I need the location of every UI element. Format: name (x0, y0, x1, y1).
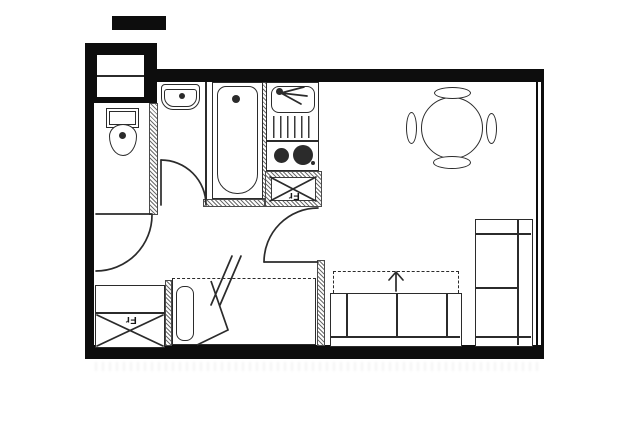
kitchen-fridge-cross (270, 177, 316, 201)
shower-door-swing-arc (161, 160, 206, 205)
floor-plan: Fr Fr (0, 0, 640, 427)
blanket-fold (197, 281, 228, 345)
entry-fridge-cross (97, 315, 163, 346)
living-door-swing-arc (264, 208, 318, 262)
scan-artifact-strip (95, 362, 540, 371)
wc-door-swing-arc (96, 215, 152, 271)
fold-out-arrow (389, 272, 403, 291)
kitchen-faucet-lines (281, 87, 307, 104)
